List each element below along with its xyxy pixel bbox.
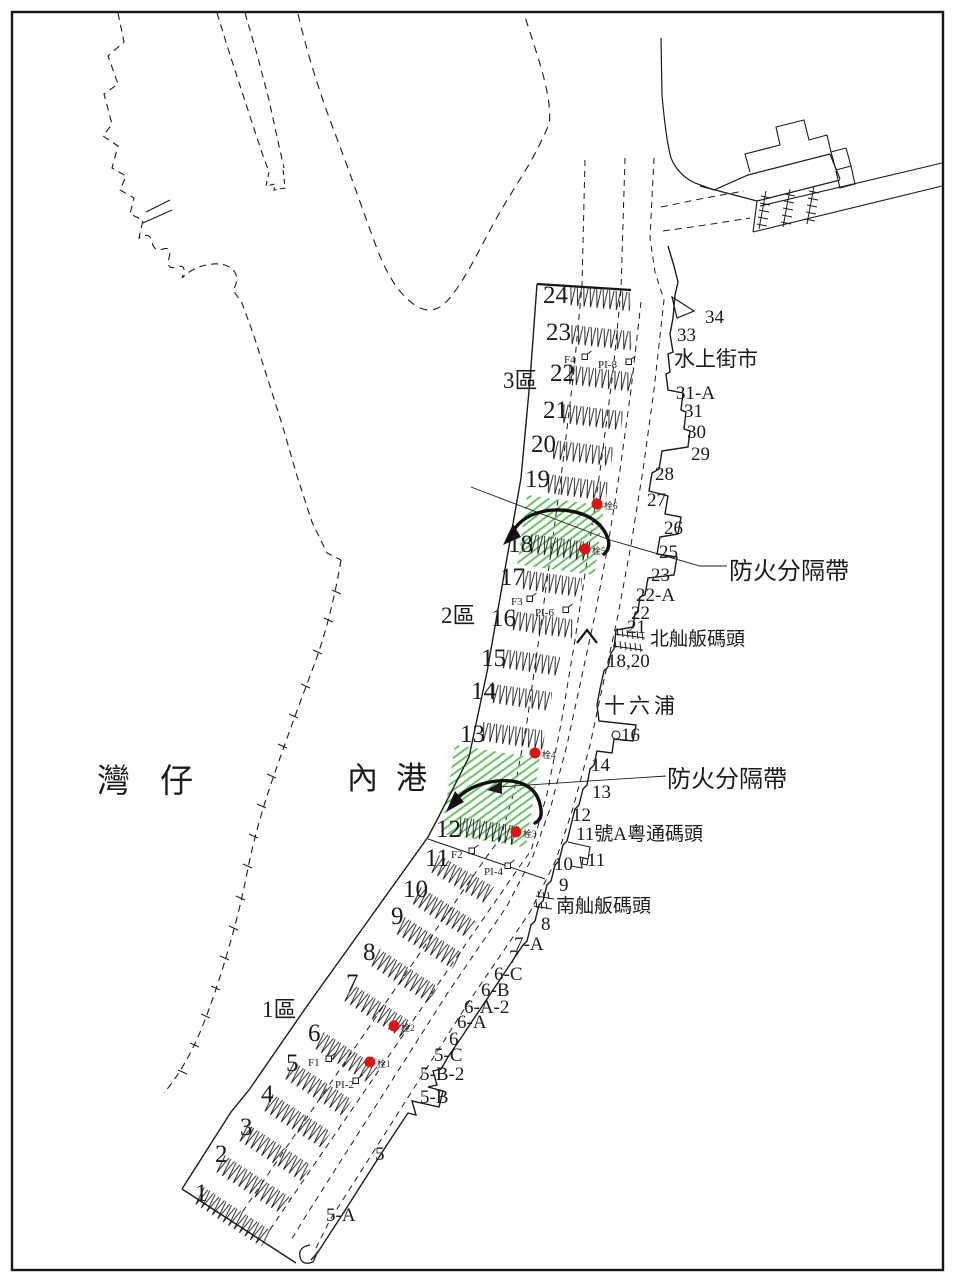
facility-label-PI-6: PI-6 xyxy=(535,607,554,619)
channel-east-edge-dashed xyxy=(245,13,284,168)
facility-label-F1: F1 xyxy=(308,1057,320,1069)
land-northeast-shore xyxy=(661,38,830,190)
row-number-13: 13 xyxy=(460,721,485,748)
berth-label-13: 13 xyxy=(592,782,611,803)
hydrant-dot-icon-6 xyxy=(592,499,603,510)
hydrant-dot-icon-2 xyxy=(389,1021,400,1032)
row-number-2: 2 xyxy=(215,1141,228,1168)
row-number-9: 9 xyxy=(391,903,404,930)
map-border-frame xyxy=(12,12,943,1270)
facility-flag-icon-F3 xyxy=(533,593,537,596)
berth-label-11: 11 xyxy=(587,850,605,871)
shore-place-label-2: 北舢舨碼頭 xyxy=(650,628,745,650)
zone-label-3: 1區 xyxy=(262,997,297,1022)
finger-pier-ladder-icons xyxy=(757,186,819,229)
land-northeast-block xyxy=(831,148,855,188)
facility-symbol-icon-PI-4 xyxy=(505,863,511,869)
berth-label-5-A: 5-A xyxy=(326,1205,356,1226)
comb-hatch xyxy=(490,683,552,712)
comb-hatch xyxy=(500,648,560,677)
shore-place-label-5: 南舢舨碼頭 xyxy=(556,895,651,917)
land-northeast-apron xyxy=(700,154,840,201)
facility-label-PI-2: PI-2 xyxy=(335,1079,354,1091)
berth-label-14: 14 xyxy=(591,755,611,776)
comb-hatch xyxy=(569,324,633,351)
pier-16-hook-icon xyxy=(612,731,620,739)
comb-hatch xyxy=(369,948,439,1004)
facility-symbol-icon-PI-8 xyxy=(626,359,632,365)
berth-label-29: 29 xyxy=(691,444,710,465)
shore-place-label-1: 水上街市 xyxy=(674,347,758,371)
row-number-14: 14 xyxy=(471,678,497,705)
facility-label-F3: F3 xyxy=(511,596,523,608)
row-number-12: 12 xyxy=(436,816,461,843)
berth-label-23: 23 xyxy=(651,565,670,586)
berth-label-18,20: 18,20 xyxy=(607,651,650,672)
mooring-row-band-23 xyxy=(569,324,633,351)
firebreak-label-2: 防火分隔帶 xyxy=(667,766,787,793)
row-number-8: 8 xyxy=(363,939,376,966)
berth-label-10: 10 xyxy=(554,854,573,875)
row-number-6: 6 xyxy=(308,1020,321,1047)
comb-hatch xyxy=(560,403,623,431)
hydrant-dot-icon-4 xyxy=(530,748,541,759)
mooring-row-band-15 xyxy=(500,648,560,677)
berth-label-26: 26 xyxy=(664,518,683,539)
facility-label-F4: F4 xyxy=(564,354,576,366)
berth-label-28: 28 xyxy=(655,464,674,485)
road-link-dashed xyxy=(661,191,750,231)
facility-flag-icon-PI-4 xyxy=(511,860,515,863)
row-number-23: 23 xyxy=(546,319,571,346)
firebreak-label-1: 防火分隔帶 xyxy=(729,558,849,585)
coastline-west-dashed xyxy=(103,13,341,560)
seawall-hatch-ticks xyxy=(178,590,341,1074)
berth-label-9: 9 xyxy=(559,875,569,896)
berth-label-5-B-2: 5-B-2 xyxy=(420,1064,464,1085)
row-number-15: 15 xyxy=(481,645,506,672)
zone-label-2: 2區 xyxy=(441,603,476,628)
facility-label-PI-8: PI-8 xyxy=(598,359,617,371)
coastline-tick-marks xyxy=(143,200,172,223)
berth-label-6-A: 6-A xyxy=(457,1012,487,1033)
channel-west-edge-dashed xyxy=(217,13,269,172)
comb-hatch xyxy=(480,721,545,751)
hydrant-dot-icon-3 xyxy=(511,827,522,838)
mooring-row-band-8 xyxy=(369,948,439,1004)
berth-label-27: 27 xyxy=(647,490,666,511)
hydrant-label-1: 栓1 xyxy=(377,1058,391,1069)
hydrant-label-2: 栓2 xyxy=(401,1022,415,1033)
mooring-row-band-14 xyxy=(490,683,552,712)
seawall-dashed xyxy=(164,560,341,1093)
mooring-row-band-13 xyxy=(480,721,545,751)
facility-flag-icon-F4 xyxy=(588,351,592,354)
berth-label-34: 34 xyxy=(705,307,725,328)
row-number-19: 19 xyxy=(525,466,550,493)
shore-place-label-3: 十六浦 xyxy=(604,694,679,718)
mooring-row-band-17 xyxy=(520,569,582,598)
zone-label-1: 3區 xyxy=(503,368,538,393)
hydrant-label-6: 栓6 xyxy=(604,500,618,511)
fairway-dashed-outline xyxy=(298,14,550,310)
row-number-1: 1 xyxy=(195,1180,208,1207)
berth-34-pennant-icon xyxy=(672,297,694,318)
hydrant-label-3: 栓3 xyxy=(523,828,537,839)
row-number-5: 5 xyxy=(286,1050,299,1077)
row-number-18: 18 xyxy=(508,531,533,558)
berth-label-16: 16 xyxy=(621,725,640,746)
caret-mark-icon xyxy=(577,630,597,643)
hydrant-label-5: 栓5 xyxy=(592,545,606,556)
hydrant-dot-icon-5 xyxy=(580,544,591,555)
hydrant-dot-icon-1 xyxy=(365,1057,376,1068)
harbour-plan-drawing: 2423222120191817161514131211109876543213… xyxy=(0,0,956,1283)
berth-label-25: 25 xyxy=(659,542,678,563)
row-number-24: 24 xyxy=(543,282,569,309)
row-number-4: 4 xyxy=(261,1081,274,1108)
facility-flag-icon-PI-6 xyxy=(569,604,573,607)
facility-label-PI-4: PI-4 xyxy=(484,866,503,878)
facility-symbol-icon-PI-6 xyxy=(563,607,569,613)
berth-label-5-B: 5-B xyxy=(420,1087,449,1108)
berth-label-8: 8 xyxy=(541,914,551,935)
row-number-21: 21 xyxy=(543,397,568,424)
berth-label-5-C: 5-C xyxy=(434,1045,463,1066)
mooring-row-band-21 xyxy=(560,403,623,431)
berth-label-12: 12 xyxy=(572,805,591,826)
hydrant-label-4: 栓4 xyxy=(542,749,556,760)
channel-end-hook xyxy=(266,169,285,190)
comb-hatch xyxy=(520,569,582,598)
row-number-20: 20 xyxy=(531,431,556,458)
district-label-1: 灣仔 xyxy=(97,763,223,800)
row-number-7: 7 xyxy=(346,970,359,997)
harbour-plan-page: 2423222120191817161514131211109876543213… xyxy=(0,0,956,1283)
south-sampan-pier-icon xyxy=(534,891,554,909)
facility-symbol-icon-F3 xyxy=(527,596,533,602)
berth-label-31: 31 xyxy=(684,401,703,422)
row-number-16: 16 xyxy=(491,605,516,632)
berth-label-21: 21 xyxy=(627,617,646,638)
row-number-10: 10 xyxy=(403,876,428,903)
facility-flag-icon-F2 xyxy=(475,845,479,848)
facility-symbol-icon-F4 xyxy=(582,354,588,360)
facility-symbol-icon-PI-2 xyxy=(353,1078,359,1084)
row-number-17: 17 xyxy=(500,564,525,591)
district-label-2: 內港 xyxy=(347,761,445,796)
shore-place-label-4: 11號A粵通碼頭 xyxy=(576,823,703,845)
berth-label-30: 30 xyxy=(687,422,706,443)
berth-label-5: 5 xyxy=(375,1144,385,1165)
row-number-11: 11 xyxy=(425,845,449,872)
facility-symbol-icon-F1 xyxy=(326,1056,332,1062)
row-number-3: 3 xyxy=(240,1114,253,1141)
berth-label-33: 33 xyxy=(677,325,696,346)
facility-label-F2: F2 xyxy=(451,849,463,861)
facility-symbol-icon-F2 xyxy=(469,848,475,854)
